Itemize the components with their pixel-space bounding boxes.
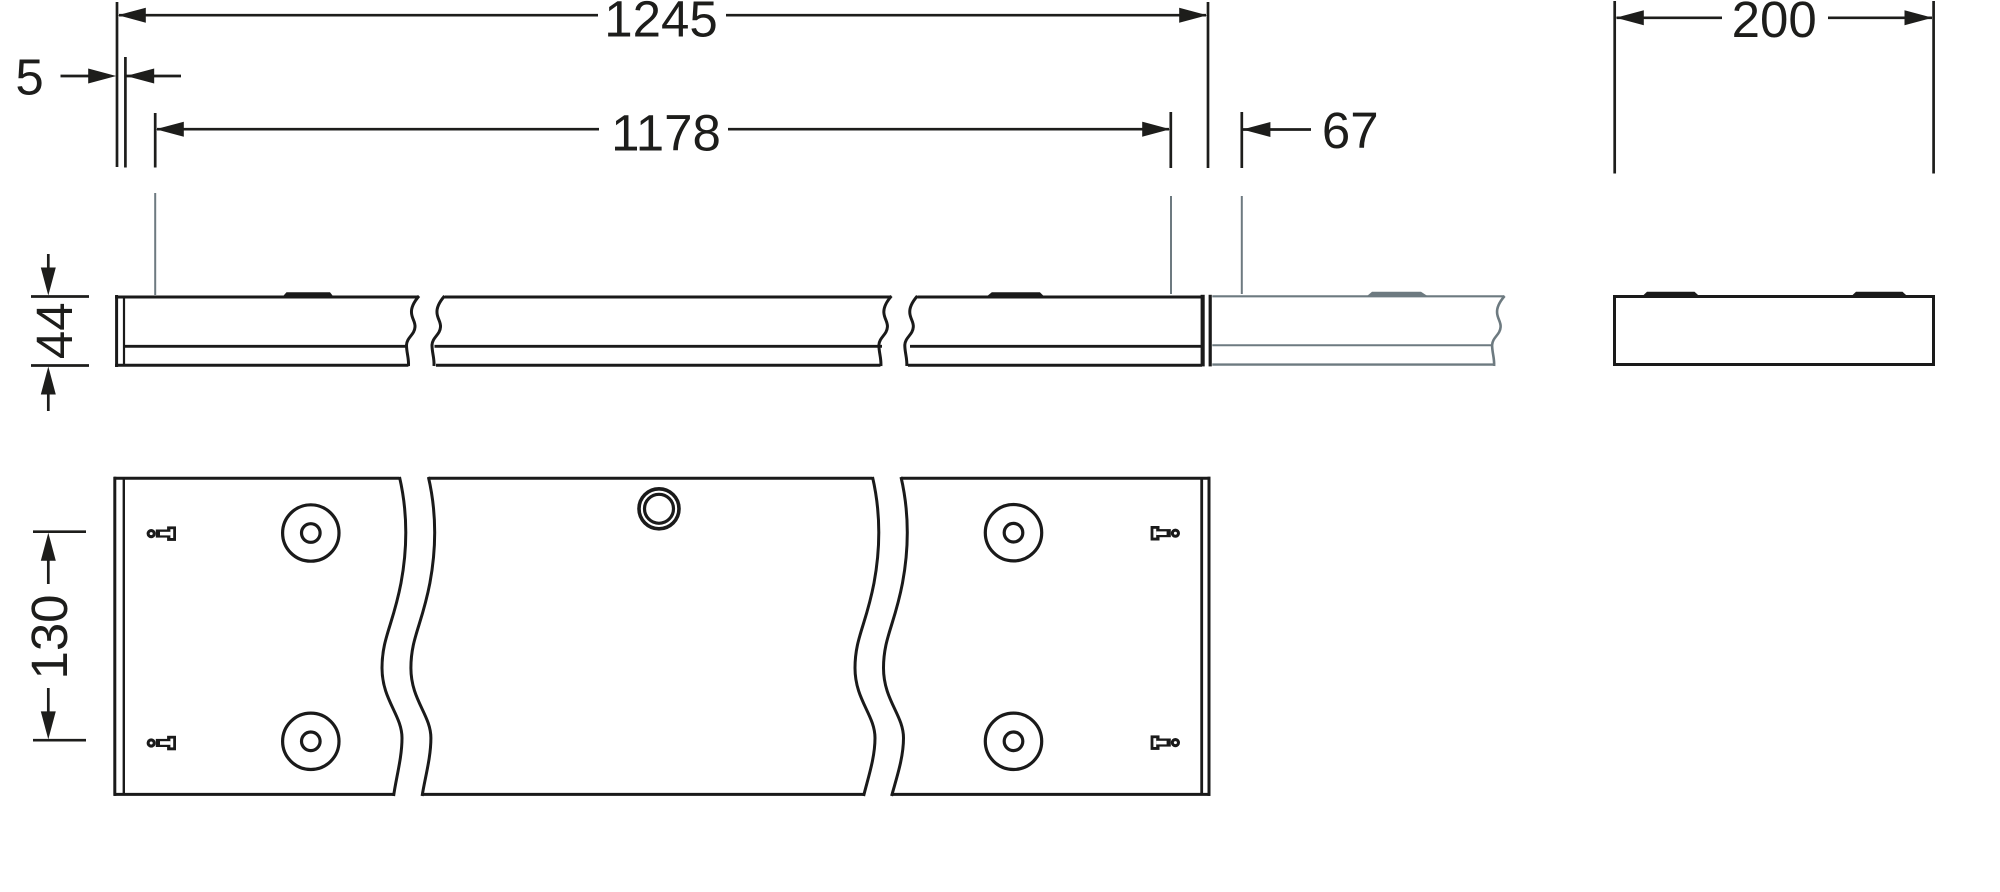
svg-text:200: 200 bbox=[1732, 0, 1817, 48]
svg-text:67: 67 bbox=[1322, 102, 1379, 159]
svg-text:1245: 1245 bbox=[604, 0, 717, 48]
svg-text:1178: 1178 bbox=[611, 105, 721, 162]
svg-text:44: 44 bbox=[26, 302, 83, 359]
svg-text:5: 5 bbox=[15, 49, 43, 106]
svg-text:130: 130 bbox=[21, 594, 78, 679]
